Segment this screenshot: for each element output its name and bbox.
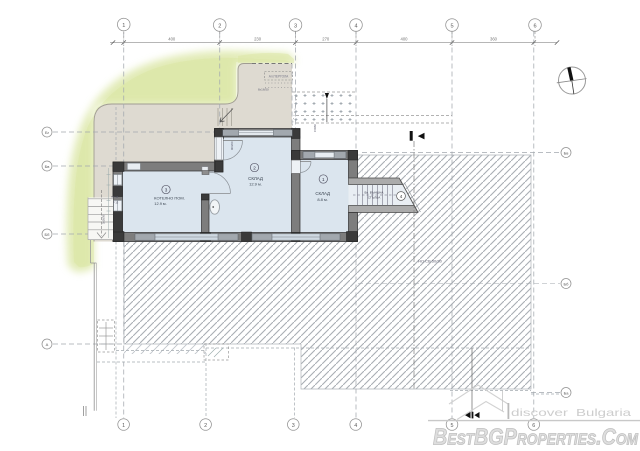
svg-text:Бб: Бб [45,232,51,237]
svg-text:12.9 м.: 12.9 м. [154,201,166,206]
svg-text:1: 1 [122,423,125,429]
svg-text:Вх. ВЪНШНА: Вх. ВЪНШНА [364,191,384,195]
svg-text:2: 2 [204,423,207,429]
svg-text:Бв: Бв [564,151,569,156]
svg-text:3х16/30: 3х16/30 [102,214,106,224]
svg-text:discover: discover [511,407,569,419]
svg-text:1: 1 [122,23,125,29]
svg-text:СТЪЛБА: СТЪЛБА [368,195,381,199]
svg-text:4: 4 [354,24,357,30]
svg-text:4: 4 [400,194,403,199]
svg-text:400: 400 [401,37,409,42]
svg-text:8.8 м.: 8.8 м. [317,197,328,202]
svg-text:12.9 м.: 12.9 м. [249,182,262,187]
svg-text:Ал.ПЕРГОЛА: Ал.ПЕРГОЛА [269,75,289,79]
svg-text:3: 3 [294,24,297,30]
svg-text:BestBGProperties.Com: BestBGProperties.Com [433,424,639,450]
svg-text:Бг: Бг [45,130,50,135]
svg-text:400: 400 [168,37,176,42]
svg-text:8х16/50: 8х16/50 [258,88,269,92]
svg-text:90/200: 90/200 [230,141,234,150]
svg-text:6: 6 [533,24,536,30]
svg-text:НО СВ 50/30: НО СВ 50/30 [418,259,443,264]
svg-text:360: 360 [490,37,498,42]
svg-text:Бв: Бв [45,164,50,169]
svg-text:2: 2 [253,166,256,171]
svg-text:СКЛАД: СКЛАД [248,176,263,181]
svg-text:КОТЕЛНО ПОМ.: КОТЕЛНО ПОМ. [154,196,185,201]
svg-text:2: 2 [218,24,221,30]
svg-text:СКЛАД: СКЛАД [315,191,330,196]
svg-text:Bulgaria: Bulgaria [576,407,631,419]
svg-text:А: А [46,342,49,347]
svg-text:270: 270 [322,37,330,42]
svg-text:3: 3 [165,188,168,193]
svg-text:4: 4 [354,423,357,429]
svg-text:3: 3 [292,423,295,429]
svg-text:Ба: Ба [564,391,570,396]
svg-text:230: 230 [254,37,262,42]
svg-text:1: 1 [322,177,325,182]
svg-text:5: 5 [450,24,453,30]
svg-text:Бб: Бб [564,282,570,287]
svg-text:150/60: 150/60 [313,124,317,132]
